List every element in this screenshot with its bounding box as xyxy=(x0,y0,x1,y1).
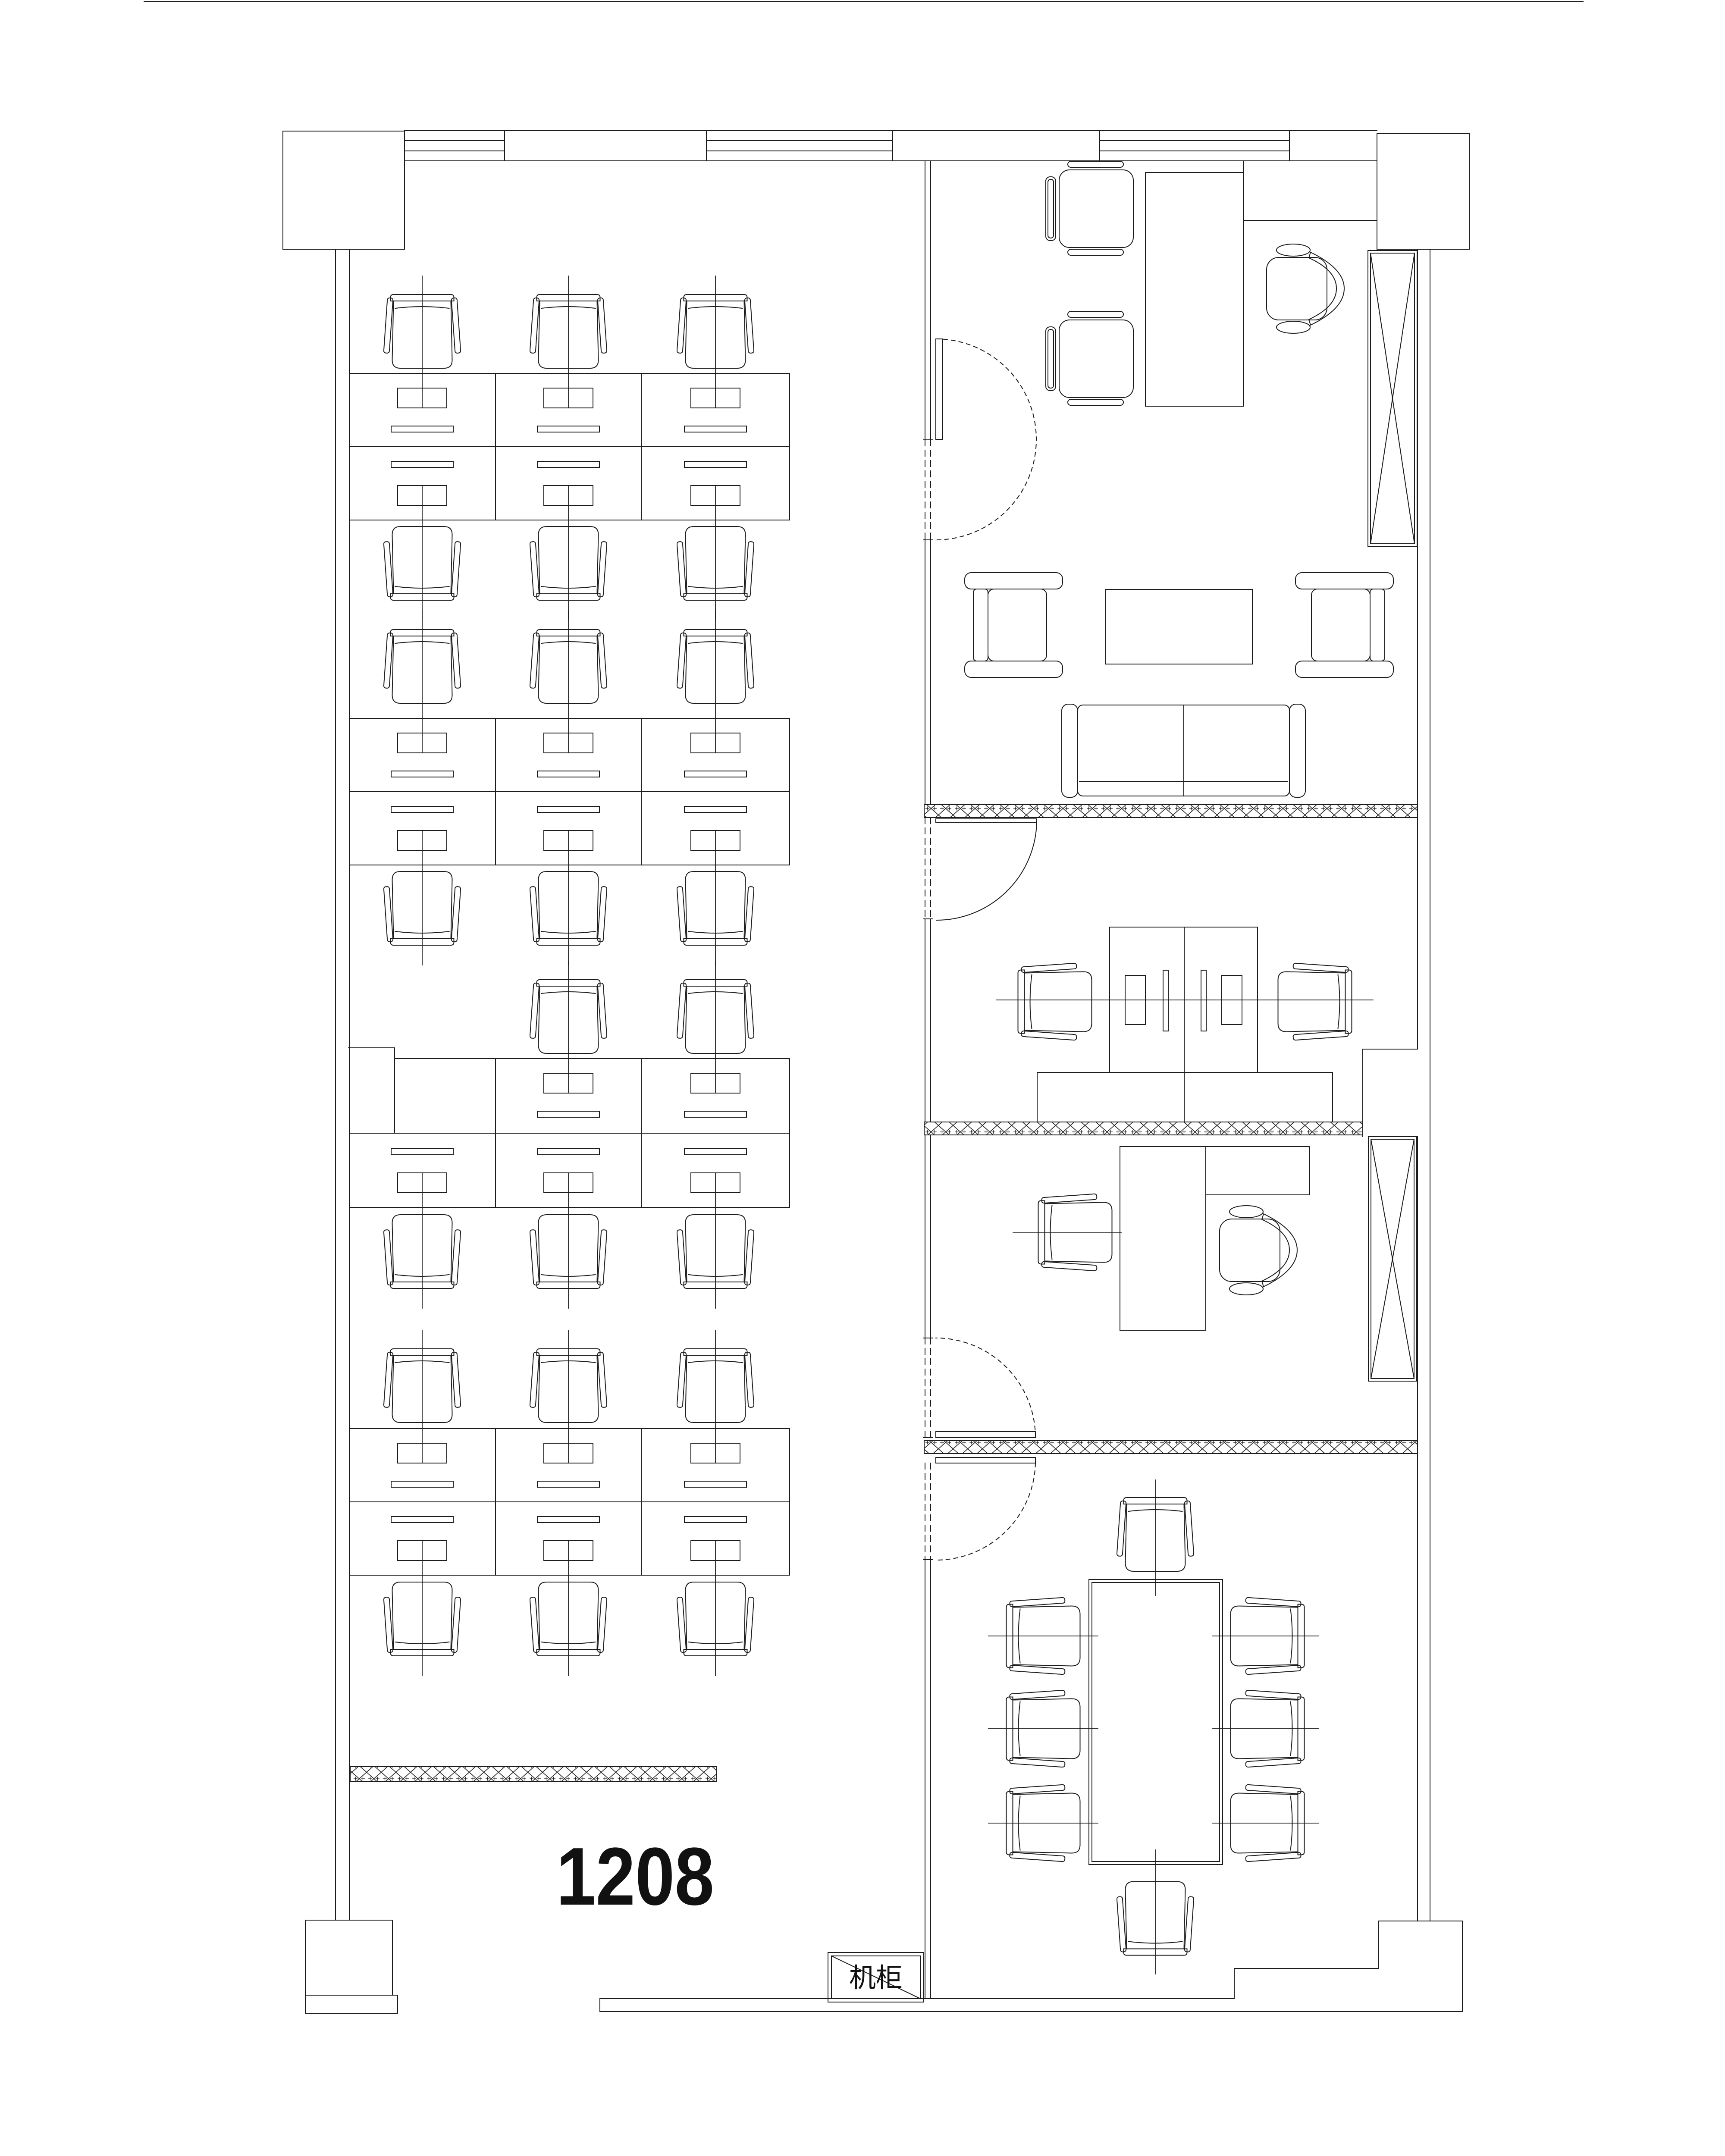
svg-text:1208: 1208 xyxy=(556,1831,714,1922)
svg-text:机柜: 机柜 xyxy=(849,1963,903,1993)
